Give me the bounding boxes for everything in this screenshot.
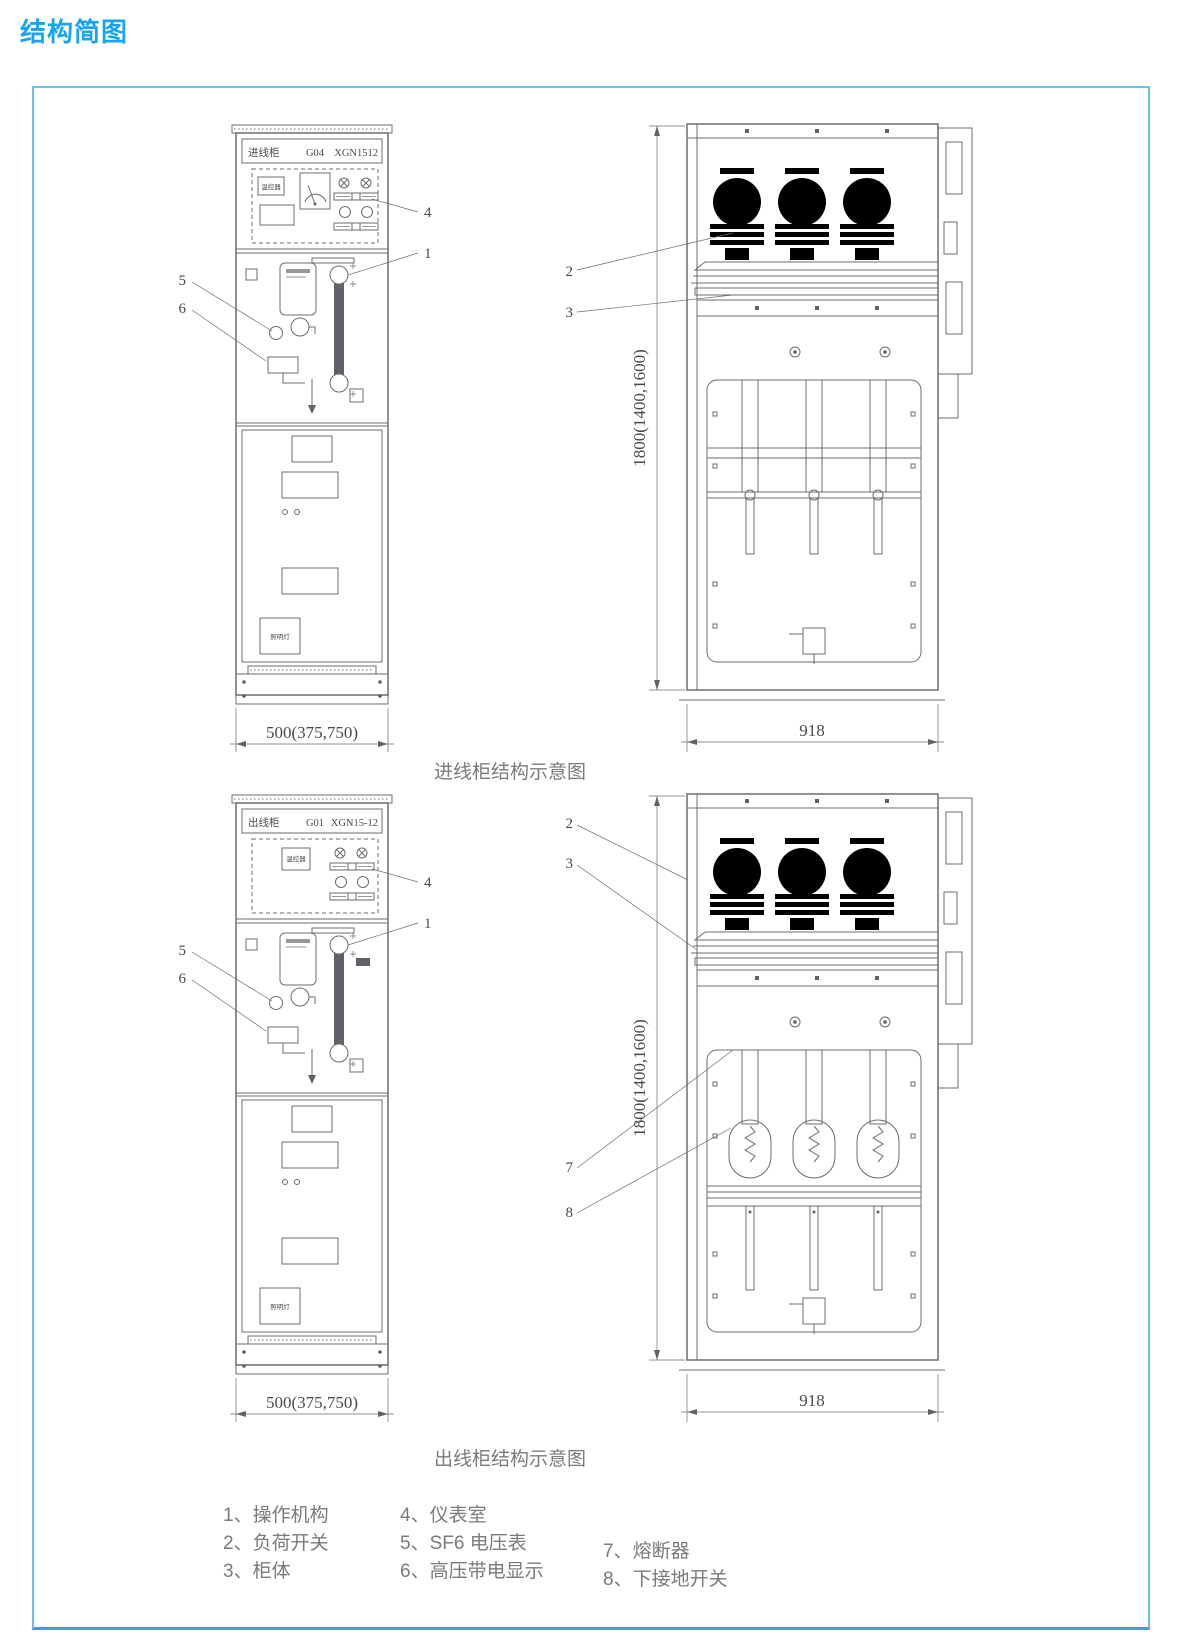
nameplate-blank xyxy=(260,205,294,225)
svg-text:2: 2 xyxy=(566,264,574,280)
svg-text:4: 4 xyxy=(424,205,432,221)
svg-text:6: 6 xyxy=(179,971,187,987)
bottom-gland-detail xyxy=(803,1298,825,1324)
cable-chamber xyxy=(707,380,921,664)
lower-door: 照明灯 xyxy=(242,1100,382,1332)
terminal-bar-upper xyxy=(330,863,374,870)
door-recess xyxy=(292,436,332,462)
thermostat-label: 温控器 xyxy=(261,182,281,191)
sf6-pressure-gauge xyxy=(270,327,283,340)
legend-item-7: 7、熔断器 xyxy=(603,1538,728,1566)
legend-column-3: 7、熔断器 8、下接地开关 xyxy=(603,1538,728,1594)
depth-dimension-text: 918 xyxy=(799,1391,825,1410)
legend-item-2: 2、负荷开关 xyxy=(223,1530,329,1558)
operating-mechanism-panel xyxy=(246,928,370,1084)
bottom-gland-detail xyxy=(803,628,825,654)
switch-enclosure xyxy=(691,932,938,986)
indicator-lamps xyxy=(339,178,371,188)
callout-1: 1 xyxy=(348,916,432,945)
terminal-bar-lower xyxy=(330,893,374,900)
cabinet-model: XGN1512 xyxy=(334,148,378,159)
page-title: 结构简图 xyxy=(20,12,128,49)
svg-text:3: 3 xyxy=(566,856,574,872)
outgoing-cabinet-front-view: 出线柜 G01 XGN15-12 温控器 xyxy=(150,782,480,1447)
cabinet-top-cap xyxy=(232,795,392,803)
nameplate-header: 进线柜 G04 XGN1512 xyxy=(242,139,382,163)
right-door-panel xyxy=(938,798,972,1088)
instrument-room: 温控器 xyxy=(252,839,378,913)
callout-1: 1 xyxy=(348,246,432,275)
callout-4: 4 xyxy=(372,199,432,221)
svg-text:3: 3 xyxy=(566,305,574,321)
operation-port xyxy=(291,318,309,336)
width-dimension: 500(375,750) xyxy=(230,1378,394,1422)
thermostat-label: 温控器 xyxy=(286,854,306,863)
indicator-lamps xyxy=(335,848,367,858)
legend-item-1: 1、操作机构 xyxy=(223,1502,329,1530)
grounding-switch-blades xyxy=(746,1206,882,1290)
legend-column-1: 1、操作机构 2、负荷开关 3、柜体 xyxy=(223,1502,329,1586)
height-dimension-text: 1800(1400,1600) xyxy=(630,349,649,467)
load-switch-bushings xyxy=(710,168,894,260)
cabinet-top-cap xyxy=(232,125,392,133)
control-buttons xyxy=(340,207,373,218)
height-dimension: 1800(1400,1600) xyxy=(630,796,685,1360)
terminal-bar-upper xyxy=(334,193,378,200)
svg-text:5: 5 xyxy=(179,273,187,289)
width-dimension: 500(375,750) xyxy=(230,708,394,752)
callout-2: 2 xyxy=(566,816,689,880)
operating-slot xyxy=(330,933,356,1067)
svg-text:7: 7 xyxy=(566,1160,574,1176)
svg-text:2: 2 xyxy=(566,816,574,832)
depth-dimension: 918 xyxy=(681,1374,944,1422)
terminal-bar-lower xyxy=(334,223,378,230)
callout-6: 6 xyxy=(179,301,267,361)
legend-item-8: 8、下接地开关 xyxy=(603,1566,728,1594)
lamp-box-label: 照明灯 xyxy=(270,1302,290,1311)
right-door-panel xyxy=(938,128,972,418)
control-buttons xyxy=(336,877,369,888)
callout-7: 7 xyxy=(566,1050,734,1176)
page: 结构简图 进线柜 G04 XGN1512 温控器 xyxy=(0,0,1182,1647)
callout-8: 8 xyxy=(566,1128,732,1221)
cabinet-model: XGN15-12 xyxy=(331,818,378,829)
callout-2: 2 xyxy=(566,233,734,280)
svg-text:1: 1 xyxy=(424,246,432,262)
cabinet-unit-no: G04 xyxy=(306,148,325,159)
operation-port xyxy=(291,988,309,1006)
operating-mechanism-panel xyxy=(246,258,363,414)
grounding-switch-shaft xyxy=(707,1198,921,1206)
callout-3: 3 xyxy=(566,856,698,950)
callout-6: 6 xyxy=(179,971,267,1031)
figure2-caption: 出线柜结构示意图 xyxy=(395,1444,625,1471)
outgoing-cabinet-side-view: 1800(1400,1600) xyxy=(545,782,975,1452)
legend-item-4: 4、仪表室 xyxy=(400,1502,544,1530)
vent-grille-lower xyxy=(282,1238,338,1264)
load-switch-bushings xyxy=(710,838,894,930)
live-display-unit xyxy=(268,1027,298,1043)
svg-text:4: 4 xyxy=(424,875,432,891)
legend-item-3: 3、柜体 xyxy=(223,1558,329,1586)
fuse-barrels xyxy=(729,1120,899,1178)
figure1-caption: 进线柜结构示意图 xyxy=(395,757,625,784)
callout-3: 3 xyxy=(566,295,734,321)
svg-text:8: 8 xyxy=(566,1205,574,1221)
door-recess xyxy=(292,1106,332,1132)
height-dimension-text: 1800(1400,1600) xyxy=(630,1019,649,1137)
legend-item-5: 5、SF6 电压表 xyxy=(400,1530,544,1558)
cabinet-name-label: 进线柜 xyxy=(248,146,280,159)
panel-screws xyxy=(790,347,890,357)
operating-slot xyxy=(330,263,356,397)
height-dimension: 1800(1400,1600) xyxy=(630,126,685,690)
svg-text:5: 5 xyxy=(179,943,187,959)
instrument-room: 温控器 xyxy=(252,169,378,243)
lamp-box-label: 照明灯 xyxy=(270,632,290,641)
svg-text:6: 6 xyxy=(179,301,187,317)
lower-door: 照明灯 xyxy=(242,430,382,662)
vent-grille-upper xyxy=(282,1142,338,1168)
width-dimension-text: 500(375,750) xyxy=(266,723,358,742)
cabinet-unit-no: G01 xyxy=(306,818,324,829)
cabinet-name-label: 出线柜 xyxy=(248,816,280,829)
switch-enclosure xyxy=(691,262,938,316)
legend-item-6: 6、高压带电显示 xyxy=(400,1558,544,1586)
callout-5: 5 xyxy=(179,273,273,331)
callout-5: 5 xyxy=(179,943,273,1001)
width-dimension-text: 500(375,750) xyxy=(266,1393,358,1412)
fuse-chamber xyxy=(707,1050,921,1334)
vent-grille-lower xyxy=(282,568,338,594)
incoming-cabinet-side-view: 1800(1400,1600) xyxy=(545,112,975,782)
analog-meter xyxy=(300,173,330,209)
depth-dimension: 918 xyxy=(681,704,944,752)
panel-screws xyxy=(790,1017,890,1027)
legend-column-2: 4、仪表室 5、SF6 电压表 6、高压带电显示 xyxy=(400,1502,544,1586)
nameplate-header: 出线柜 G01 XGN15-12 xyxy=(242,809,382,833)
svg-text:1: 1 xyxy=(424,916,432,932)
incoming-cabinet-front-view: 进线柜 G04 XGN1512 温控器 xyxy=(150,112,480,777)
cabinet-base xyxy=(236,662,388,704)
depth-dimension-text: 918 xyxy=(799,721,825,740)
cabinet-base xyxy=(236,1332,388,1374)
vent-grille-upper xyxy=(282,472,338,498)
sf6-pressure-gauge xyxy=(270,997,283,1010)
callout-4: 4 xyxy=(372,869,432,891)
live-display-unit xyxy=(268,357,298,373)
